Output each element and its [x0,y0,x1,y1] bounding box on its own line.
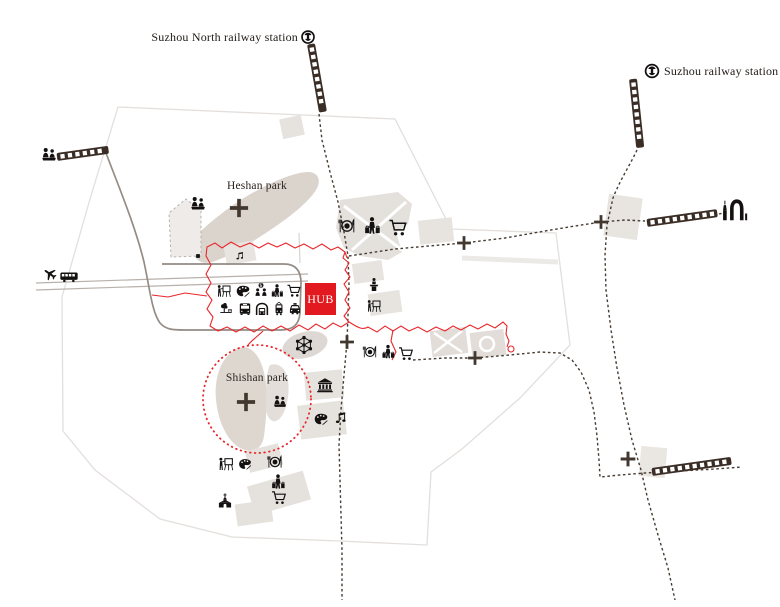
hub-block: HUB [305,283,336,315]
railway-track [629,79,644,148]
suzhou-transit-diagram: $ [0,0,780,607]
line-north-vertical [319,114,349,600]
map-canvas [0,0,780,607]
red-link-shishan [248,331,263,345]
railway-track [307,43,327,112]
built-area-blobs [169,115,667,526]
red-branch-end-loop [508,346,514,352]
railway-track [646,209,717,227]
line-south-east [413,352,742,477]
red-top-link [345,252,347,258]
railway-track [56,146,109,161]
red-west-spur [152,293,207,297]
site-boundary [62,107,570,545]
red-stub [391,330,396,360]
hub-label: HUB [307,292,334,307]
transit-dashed-lines [319,114,742,600]
